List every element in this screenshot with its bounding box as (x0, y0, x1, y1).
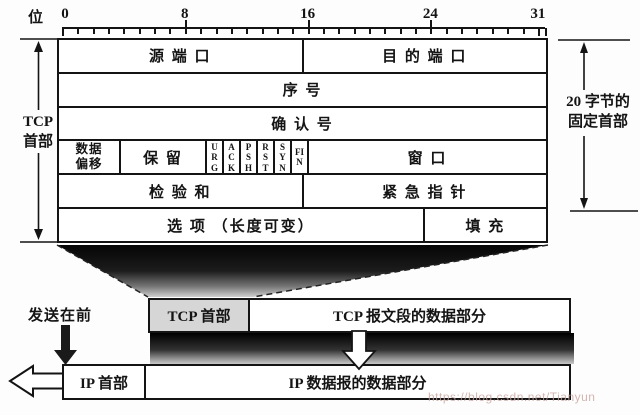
segment-to-datagram-down-arrow-icon (343, 331, 375, 369)
transmit-left-arrow-icon (10, 366, 63, 396)
watermark-text: https://blog.csdn.net/Tianyun (428, 390, 640, 404)
sent-first-down-arrow-icon (54, 325, 77, 365)
arrows-layer (0, 0, 640, 415)
tcp-header-diagram: 位 08162431 源 端 口 目 的 端 口 序 号 确 认 号 数据 偏移… (0, 0, 640, 415)
